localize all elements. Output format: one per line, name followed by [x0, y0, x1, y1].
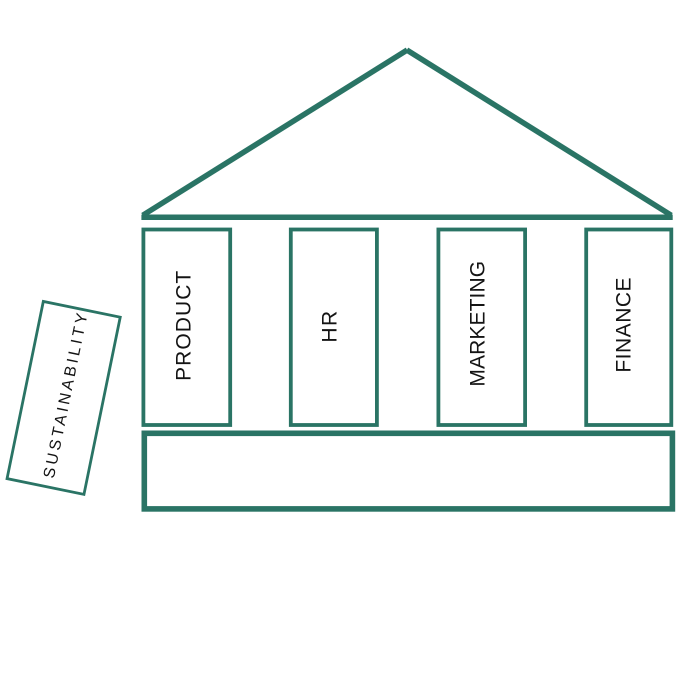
svg-text:HR: HR: [318, 309, 341, 342]
svg-text:SUSTAINABILITY: SUSTAINABILITY: [41, 309, 92, 480]
svg-text:FINANCE: FINANCE: [613, 277, 636, 373]
svg-text:PRODUCT: PRODUCT: [173, 270, 196, 381]
svg-text:MARKETING: MARKETING: [466, 261, 489, 387]
